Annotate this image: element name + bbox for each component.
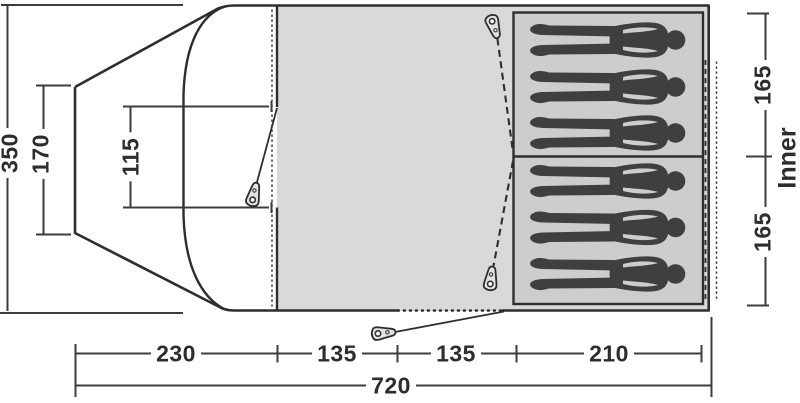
- dim-165-lines: [746, 13, 772, 306]
- inner-label: Inner: [776, 123, 800, 192]
- dim-label-115: 115: [120, 133, 143, 182]
- tent-body-front-curve: [184, 7, 226, 310]
- dim-label-135-right: 135: [431, 343, 481, 366]
- dim-label-170: 170: [30, 129, 53, 179]
- dim-label-720: 720: [366, 375, 416, 398]
- dim-label-135-left: 135: [312, 343, 362, 366]
- dim-label-230: 230: [151, 343, 201, 366]
- tent-peg: [371, 326, 396, 341]
- dim-label-165-top: 165: [752, 60, 775, 110]
- dim-label-165-bottom: 165: [752, 207, 775, 257]
- tent-floorplan: 350 170 115 165 165 Inner 230 135 135 21…: [0, 0, 800, 403]
- floorplan-drawing: [0, 0, 800, 403]
- dim-label-210: 210: [584, 343, 634, 366]
- dim-label-350: 350: [0, 128, 22, 178]
- tent-peg: [245, 181, 263, 207]
- porch-guy-line: [257, 108, 278, 184]
- door-guy-line: [395, 312, 504, 333]
